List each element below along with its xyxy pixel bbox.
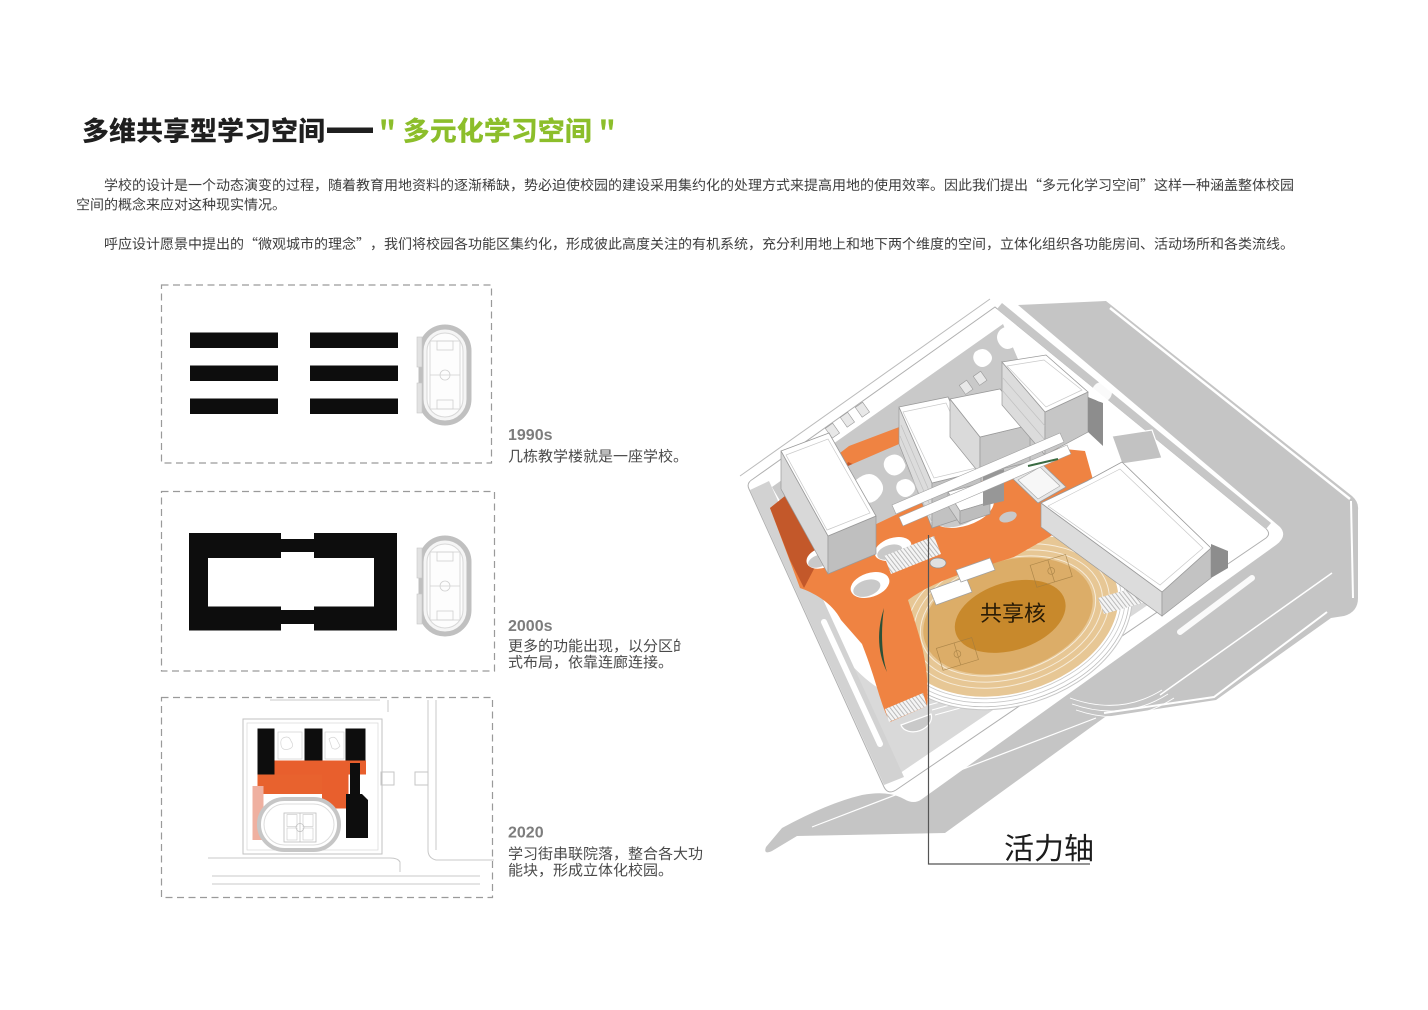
svg-text:1990s: 1990s	[508, 427, 553, 444]
svg-text:2020: 2020	[508, 825, 544, 842]
svg-text:2000s: 2000s	[508, 618, 553, 635]
